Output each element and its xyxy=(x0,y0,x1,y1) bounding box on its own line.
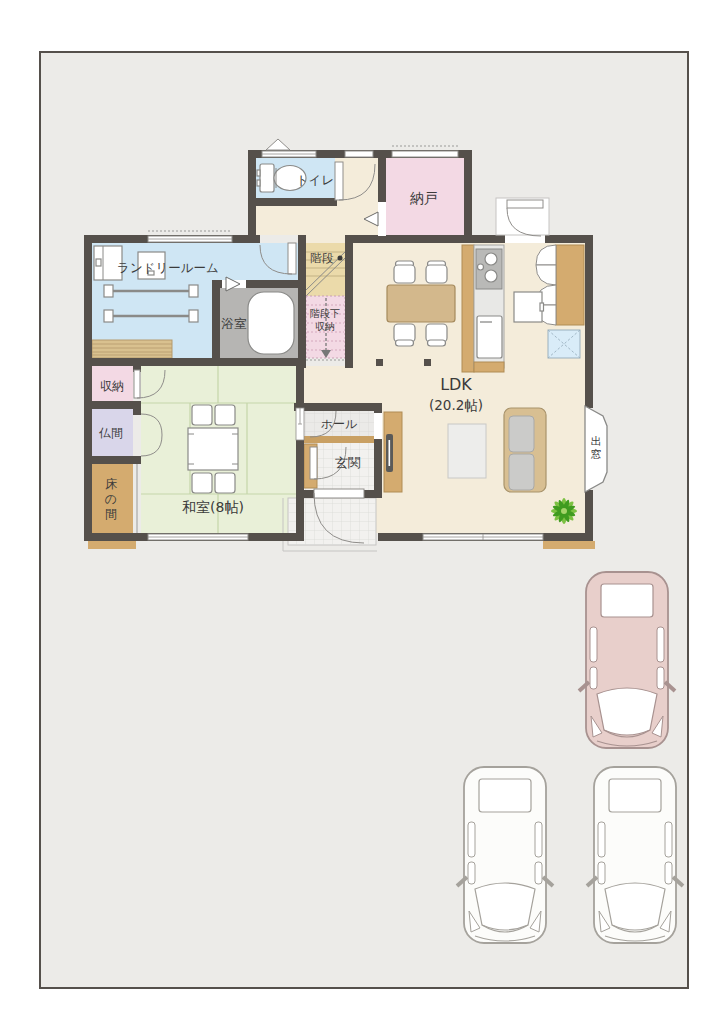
label-ldk: LDK xyxy=(440,375,472,394)
entrance-door xyxy=(314,489,364,498)
wood-deck xyxy=(92,340,172,358)
room-laundry-upper xyxy=(212,243,298,280)
stove-icon xyxy=(476,249,502,289)
floor-hatch xyxy=(548,330,580,358)
label-hall: ホール xyxy=(321,417,358,431)
stairs-entry xyxy=(306,235,345,243)
kitchen-cabinet xyxy=(514,292,544,322)
car-pink xyxy=(579,572,675,748)
car-white-1 xyxy=(457,767,553,943)
tv-board xyxy=(384,412,402,492)
toilet-door xyxy=(335,162,343,200)
label-under-stairs-2: 収納 xyxy=(315,321,335,332)
label-bay-window-2: 窓 xyxy=(591,448,602,461)
label-tokonoma-1: 床 xyxy=(105,477,117,491)
corridor-lower xyxy=(304,366,353,403)
tatami-table xyxy=(188,428,238,470)
exterior-step xyxy=(543,541,595,549)
floor-plan-page: トイレ 納戸 ランドリールーム 階段 階段下 収納 浴室 LDK (20.2帖)… xyxy=(0,0,718,1024)
pillar xyxy=(376,359,383,366)
closet-door xyxy=(134,370,140,398)
corridor-window xyxy=(345,151,373,157)
label-stairs: 階段 xyxy=(311,251,335,265)
label-toilet: トイレ xyxy=(296,172,334,187)
nando-window xyxy=(392,151,458,157)
genkan-inner-door xyxy=(310,447,317,479)
hall-ldk-opening xyxy=(374,413,382,439)
label-laundry: ランドリールーム xyxy=(117,260,219,275)
pillar xyxy=(424,359,431,366)
nando-doorway xyxy=(378,202,386,236)
label-bay-window-1: 出 xyxy=(591,435,602,448)
car-white-2 xyxy=(587,767,683,943)
label-tokonoma-2: の xyxy=(105,492,117,506)
label-tokonoma-3: 間 xyxy=(105,507,117,521)
sofa-icon xyxy=(504,408,546,492)
label-closet: 収納 xyxy=(100,379,124,393)
exterior-step xyxy=(88,541,136,549)
bathtub-icon xyxy=(248,292,294,354)
plant-icon xyxy=(551,498,577,524)
label-butsuma: 仏間 xyxy=(98,426,123,440)
label-genkan: 玄関 xyxy=(335,455,361,470)
low-table xyxy=(448,424,486,478)
back-door xyxy=(507,200,543,208)
label-washitsu: 和室(8帖) xyxy=(182,499,244,515)
fridge-icon xyxy=(477,316,502,358)
label-bath: 浴室 xyxy=(221,316,248,331)
laundry-door xyxy=(288,243,296,274)
label-ldk-size: (20.2帖) xyxy=(429,397,483,413)
label-under-stairs-1: 階段下 xyxy=(310,308,340,319)
floor-plan-canvas: トイレ 納戸 ランドリールーム 階段 階段下 収納 浴室 LDK (20.2帖)… xyxy=(0,0,718,1024)
label-nando: 納戸 xyxy=(410,190,438,206)
